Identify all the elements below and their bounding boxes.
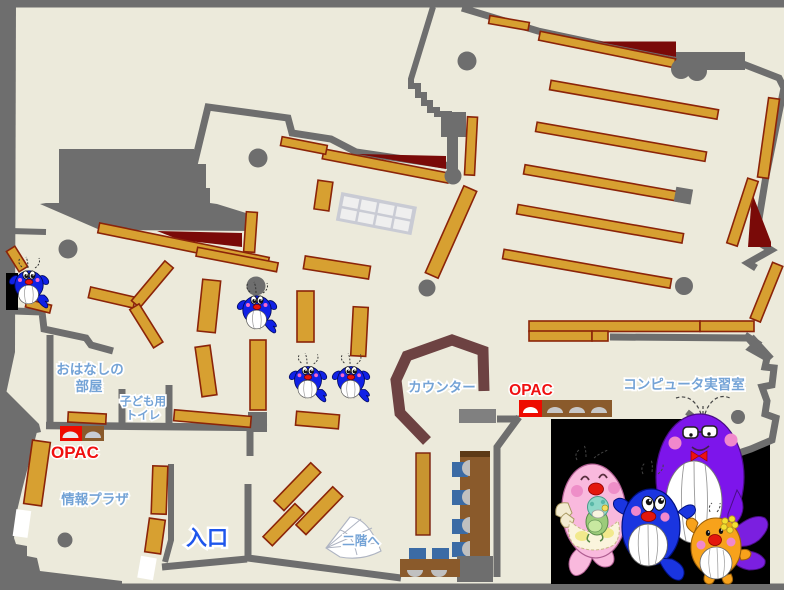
svg-text:OPAC: OPAC xyxy=(51,443,99,462)
svg-text:おはなしの: おはなしの xyxy=(56,362,124,377)
svg-text:OPAC: OPAC xyxy=(509,382,553,399)
svg-text:情報プラザ: 情報プラザ xyxy=(61,491,129,507)
svg-text:部屋: 部屋 xyxy=(76,378,103,394)
svg-text:二階へ: 二階へ xyxy=(342,533,380,548)
svg-text:子ども用: 子ども用 xyxy=(120,395,166,408)
svg-text:入口: 入口 xyxy=(186,527,228,550)
svg-text:トイレ: トイレ xyxy=(126,409,161,422)
svg-text:コンピュータ実習室: コンピュータ実習室 xyxy=(623,376,745,392)
svg-text:カウンター: カウンター xyxy=(408,380,476,395)
